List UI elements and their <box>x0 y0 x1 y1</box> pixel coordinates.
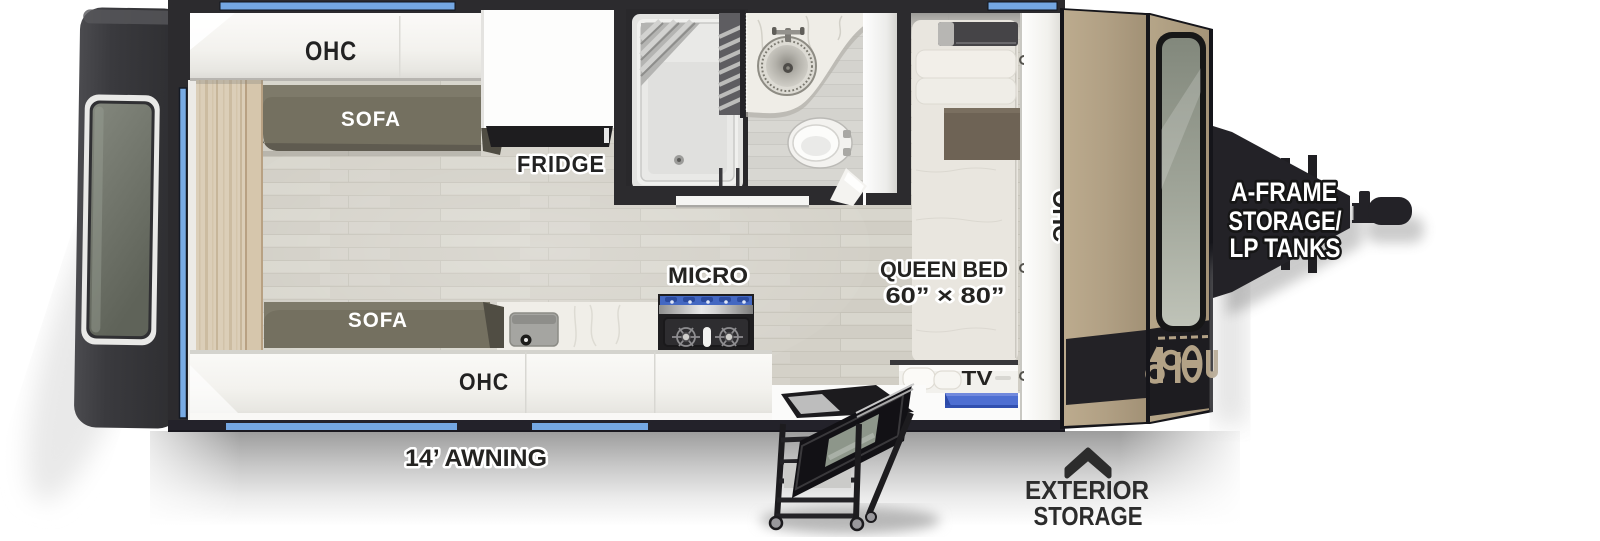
svg-text:FRIDGE: FRIDGE <box>517 151 605 177</box>
svg-text:STORAGE/: STORAGE/ <box>1229 206 1342 236</box>
svg-text:MICRO: MICRO <box>668 263 748 288</box>
svg-text:14’ AWNING: 14’ AWNING <box>405 445 547 472</box>
svg-text:SOFA: SOFA <box>348 309 408 332</box>
svg-text:LP TANKS: LP TANKS <box>1230 233 1341 263</box>
svg-text:STORAGE: STORAGE <box>1034 501 1143 531</box>
svg-text:OHC: OHC <box>459 369 509 396</box>
svg-text:TV: TV <box>962 368 994 390</box>
svg-text:SOFA: SOFA <box>341 108 401 131</box>
svg-text:QUEEN BED: QUEEN BED <box>880 257 1008 282</box>
svg-text:OHC: OHC <box>305 36 357 66</box>
svg-text:60” × 80”: 60” × 80” <box>886 283 1005 308</box>
svg-text:A-FRAME: A-FRAME <box>1231 177 1337 207</box>
